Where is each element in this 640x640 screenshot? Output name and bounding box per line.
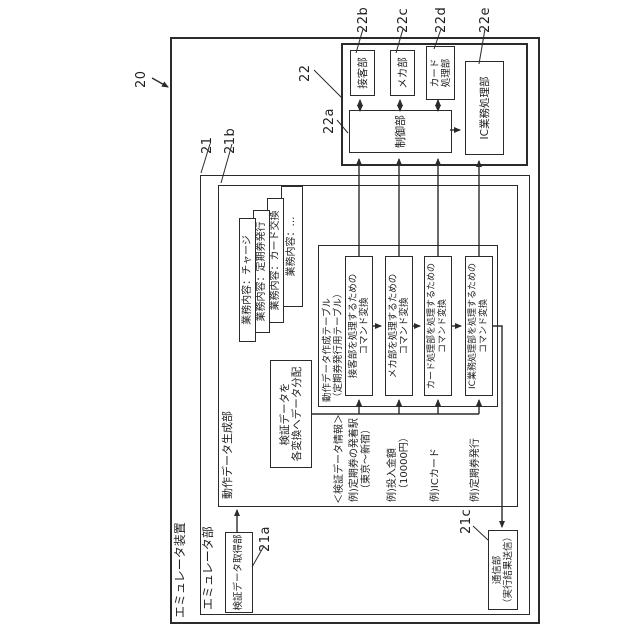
card-unit-line2: 処理部 bbox=[441, 59, 452, 88]
data-distribution-box: 検証データを 各変換へデータ分配 bbox=[270, 360, 312, 468]
business-content-card-1: 業務内容：チャージ bbox=[239, 218, 256, 342]
figure-rotated-container: エミュレータ装置 エミュレータ部 動作データ生成部 業務内容：… 業務内容：カー… bbox=[130, 0, 570, 630]
emulator-unit-title: エミュレータ部 bbox=[202, 526, 215, 610]
communication-line1: 通信部 bbox=[492, 556, 503, 585]
ref-label-21: 21 bbox=[200, 136, 215, 154]
card-unit-line1: カード bbox=[430, 59, 441, 88]
annotation-pass-issue: 例)定期券発行 bbox=[470, 438, 482, 502]
card-processing-unit-box-22d: カード 処理部 bbox=[426, 46, 455, 100]
row2-line2: コマンド変換 bbox=[399, 298, 410, 355]
patent-figure-page: エミュレータ装置 エミュレータ部 動作データ生成部 業務内容：… 業務内容：カー… bbox=[0, 0, 640, 640]
distribution-line2: 各変換へデータ分配 bbox=[291, 367, 303, 462]
table-title-line2: （定期券発行用テーブル） bbox=[333, 252, 344, 402]
ic-business-processing-unit-box-22e: IC業務処理部 bbox=[465, 61, 504, 155]
emulator-device-title: エミュレータ装置 bbox=[174, 522, 187, 618]
mechanism-unit-box-22c: メカ部 bbox=[390, 50, 415, 96]
row1-line1: 接客部を処理するための bbox=[348, 274, 359, 379]
row4-line1: IC業務処理部を処理するための bbox=[468, 263, 479, 389]
annotation-ic-card: 例)ICカード bbox=[430, 448, 442, 502]
reception-unit-label: 接客部 bbox=[357, 57, 369, 89]
annotation-amount-line2: （10000円） bbox=[399, 432, 411, 502]
row3-line1: カード処理部を処理するための bbox=[427, 263, 438, 389]
reception-unit-box-22b: 接客部 bbox=[350, 50, 375, 96]
annotation-stations-line2: （東京～新宿） bbox=[361, 418, 373, 502]
row4-line2: コマンド変換 bbox=[479, 299, 490, 353]
annotation-stations-line1: 例)定期券の発着駅 bbox=[349, 418, 361, 502]
verification-data-acquisition-box-21a: 検証データ取得部 bbox=[225, 532, 253, 613]
verification-info-header: ＜検証データ情報＞ bbox=[334, 414, 346, 504]
business-content-card-4: 業務内容：… bbox=[281, 186, 303, 307]
command-conversion-row-2: メカ部を処理するための コマンド変換 bbox=[385, 256, 413, 396]
ref-label-22a: 22a bbox=[322, 108, 337, 134]
ref-label-22: 22 bbox=[298, 64, 313, 82]
distribution-line1: 検証データを bbox=[279, 383, 291, 446]
table-title: 動作データ作成テーブル （定期券発行用テーブル） bbox=[322, 252, 344, 402]
ic-unit-label: IC業務処理部 bbox=[479, 77, 491, 140]
communication-box-21c: 通信部 （実行結果送信） bbox=[488, 530, 518, 610]
station-equipment-box-22: 制御部 接客部 メカ部 カード 処理部 IC業務処理部 bbox=[341, 43, 528, 166]
control-unit-box-22a: 制御部 bbox=[349, 110, 452, 153]
communication-line2: （実行結果送信） bbox=[503, 532, 514, 608]
command-conversion-row-1: 接客部を処理するための コマンド変換 bbox=[345, 256, 373, 396]
acquisition-label: 検証データ取得部 bbox=[233, 535, 245, 611]
control-unit-label: 制御部 bbox=[395, 115, 407, 148]
operation-data-table-box: 動作データ作成テーブル （定期券発行用テーブル） 接客部を処理するための コマン… bbox=[318, 245, 498, 407]
ref-label-22e: 22e bbox=[478, 7, 493, 33]
command-conversion-row-4: IC業務処理部を処理するための コマンド変換 bbox=[465, 256, 493, 396]
row1-line2: コマンド変換 bbox=[359, 298, 370, 355]
ref-label-21a: 21a bbox=[258, 526, 273, 552]
row2-line1: メカ部を処理するための bbox=[388, 274, 399, 379]
generator-title: 動作データ生成部 bbox=[221, 411, 234, 499]
ref-label-22b: 22b bbox=[356, 7, 371, 33]
annotation-stations: 例)定期券の発着駅 （東京～新宿） bbox=[349, 418, 373, 502]
ref-label-22d: 22d bbox=[434, 7, 449, 33]
annotation-amount-line1: 例)投入金額 bbox=[387, 432, 399, 502]
ref-label-21b: 21b bbox=[223, 128, 238, 154]
ref-label-22c: 22c bbox=[396, 8, 411, 33]
mechanism-unit-label: メカ部 bbox=[397, 57, 409, 89]
annotation-amount: 例)投入金額 （10000円） bbox=[387, 432, 411, 502]
command-conversion-row-3: カード処理部を処理するための コマンド変換 bbox=[424, 256, 452, 396]
ref-label-21c: 21c bbox=[459, 509, 474, 534]
arrow-ref20 bbox=[152, 78, 168, 87]
table-title-line1: 動作データ作成テーブル bbox=[322, 252, 333, 402]
row3-line2: コマンド変換 bbox=[438, 299, 449, 353]
ref-label-20: 20 bbox=[134, 70, 149, 88]
